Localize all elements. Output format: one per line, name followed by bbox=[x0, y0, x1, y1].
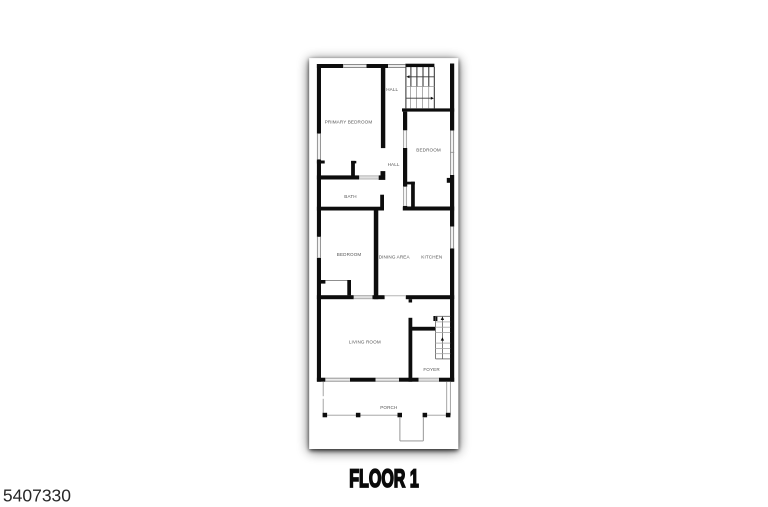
svg-text:5407330: 5407330 bbox=[3, 486, 71, 506]
svg-text:BEDROOM: BEDROOM bbox=[416, 148, 441, 153]
svg-text:BATH: BATH bbox=[344, 194, 356, 199]
svg-text:HALL: HALL bbox=[386, 87, 398, 92]
svg-text:LIVING ROOM: LIVING ROOM bbox=[349, 339, 381, 344]
svg-text:HALL: HALL bbox=[388, 162, 400, 167]
svg-text:BEDROOM: BEDROOM bbox=[337, 252, 362, 257]
svg-text:PRIMARY BEDROOM: PRIMARY BEDROOM bbox=[325, 119, 373, 124]
svg-text:KITCHEN: KITCHEN bbox=[421, 254, 442, 259]
svg-text:FLOOR 1: FLOOR 1 bbox=[349, 465, 419, 493]
svg-text:FOYER: FOYER bbox=[423, 367, 440, 372]
svg-text:DINING AREA: DINING AREA bbox=[379, 254, 411, 259]
svg-text:PORCH: PORCH bbox=[380, 405, 397, 410]
